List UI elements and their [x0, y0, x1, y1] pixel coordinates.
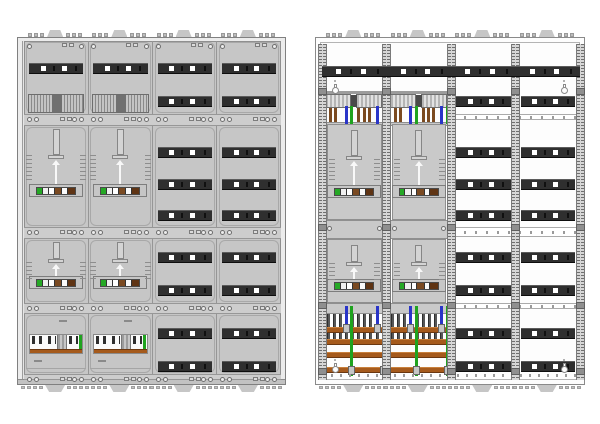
- terminal-segment: [125, 280, 131, 286]
- flange-rib: [565, 386, 569, 389]
- rail-mark: [479, 69, 481, 74]
- field-separator: [88, 41, 89, 379]
- meter-arrow-line: [55, 165, 57, 187]
- frame-rail-hatch: [512, 44, 515, 378]
- rail-mark: [246, 66, 248, 71]
- frame-rail: [447, 44, 456, 380]
- wire-green: [446, 106, 449, 124]
- cover-clip: [189, 306, 194, 310]
- busbar-prong: [428, 314, 431, 344]
- flange-rib: [390, 386, 394, 389]
- terminal-row-center-block: [52, 95, 62, 112]
- busbar-prong: [391, 314, 394, 344]
- cable-flange-bump-top: [474, 30, 490, 37]
- rail-window: [169, 255, 174, 260]
- rail-window: [553, 331, 558, 336]
- cable-flange-bump-bottom: [343, 385, 363, 392]
- side-wall-left: [18, 38, 23, 384]
- rail-window: [190, 213, 195, 218]
- screw: [91, 230, 96, 235]
- meter-field-band: [322, 220, 451, 239]
- meter-hanger-rail: [53, 129, 60, 155]
- flange-rib: [131, 386, 135, 389]
- rail-mark: [350, 69, 352, 74]
- flange-rib: [98, 33, 102, 37]
- section-boundary-band: [24, 227, 281, 239]
- section-boundary-band: [24, 303, 281, 314]
- rail-window: [468, 213, 473, 218]
- terminal-segment: [112, 188, 118, 194]
- meter-terminal-block: [93, 184, 147, 197]
- rail-window: [254, 255, 259, 260]
- meter-arrow-head: [415, 161, 423, 166]
- keyhole-dot: [334, 359, 336, 361]
- flange-rib: [332, 33, 336, 37]
- cover-clip: [126, 43, 131, 47]
- flange-rib: [532, 33, 536, 37]
- rail-bracket: [318, 88, 327, 95]
- rail-mark: [502, 364, 504, 369]
- rail-mark: [567, 99, 569, 104]
- vent-slots: [374, 156, 380, 180]
- cabinet-open-frame-view: [315, 37, 585, 385]
- din-rail-cover: [158, 96, 212, 107]
- terminal-comb: [325, 94, 351, 108]
- terminal-segment: [424, 283, 430, 289]
- rail-window: [532, 99, 537, 104]
- rail-mark: [53, 66, 55, 71]
- comb-cap-bar: [323, 91, 386, 94]
- din-rail-cover: [456, 179, 511, 190]
- flange-rib: [271, 33, 275, 37]
- flange-rib: [214, 386, 218, 389]
- din-rail-cover: [222, 285, 276, 296]
- screw: [208, 44, 213, 49]
- cover-clip: [124, 377, 129, 381]
- din-rail-cover: [456, 210, 511, 221]
- rail-mark: [268, 364, 270, 369]
- wire-lug: [413, 366, 420, 375]
- rail-window: [468, 364, 473, 369]
- terminal-segment: [48, 280, 54, 286]
- terminal-segment: [404, 189, 411, 195]
- terminal-segment: [67, 280, 75, 286]
- rail-mark: [506, 69, 508, 74]
- wire-lug: [348, 366, 355, 375]
- cover-clip: [131, 377, 136, 381]
- busbar-prong: [345, 314, 348, 344]
- vent-slots: [80, 259, 86, 279]
- section-line-band: [451, 114, 580, 120]
- rail-mark: [204, 182, 206, 187]
- wire-blue-drop: [440, 306, 443, 328]
- flange-rib: [319, 386, 323, 389]
- terminal-segment: [101, 188, 106, 194]
- section-cover-outline: [219, 240, 279, 302]
- rail-window: [465, 69, 470, 74]
- rail-mark: [567, 150, 569, 155]
- flange-rib: [441, 33, 445, 37]
- meter-hanger-foot: [48, 155, 64, 159]
- flange-rib: [577, 386, 581, 389]
- busbar-prong: [376, 314, 379, 344]
- vent-slots: [439, 156, 445, 180]
- flange-rib: [526, 33, 530, 37]
- flange-rib: [442, 386, 446, 389]
- cable-flange-bump-bottom: [472, 385, 492, 392]
- vent-slots: [374, 262, 380, 280]
- screw: [144, 377, 149, 382]
- busbar-prong: [363, 314, 366, 344]
- rail-window: [254, 182, 259, 187]
- rail-window: [254, 288, 259, 293]
- wire-brown: [422, 108, 425, 122]
- rail-window: [169, 150, 174, 155]
- meter-hanger-foot: [112, 259, 128, 263]
- screw: [201, 306, 206, 311]
- rail-window: [190, 255, 195, 260]
- wire-brown: [388, 108, 391, 122]
- flange-rib: [461, 33, 465, 37]
- terminal-segment: [37, 280, 42, 286]
- busbar-copper-bar: [324, 327, 385, 333]
- vent-slots: [394, 262, 400, 280]
- section-cover-outline: [26, 240, 86, 302]
- din-rail-cover: [222, 179, 276, 190]
- screw: [227, 230, 232, 235]
- din-rail-cover: [456, 147, 511, 158]
- vent-slots: [90, 154, 96, 180]
- screw: [220, 117, 225, 122]
- cover-clip: [260, 117, 265, 121]
- cable-flange-bump-bottom: [174, 385, 194, 392]
- terminal-segment: [416, 189, 423, 195]
- flange-rib: [67, 386, 71, 389]
- flange-rib: [91, 386, 95, 389]
- rail-bracket: [511, 224, 520, 231]
- flange-rib: [72, 33, 76, 37]
- terminal-segment: [37, 188, 42, 194]
- rail-window: [234, 288, 239, 293]
- flange-rib: [266, 386, 270, 389]
- terminal-segment: [106, 188, 113, 194]
- screw: [144, 44, 149, 49]
- wire-brown: [324, 108, 327, 122]
- connector-teeth: [48, 336, 56, 344]
- keyhole-icon: [561, 366, 568, 373]
- rail-mark: [268, 99, 270, 104]
- busbar-hatch-block: [121, 335, 131, 353]
- bottom-wall: [18, 379, 285, 384]
- rail-window: [530, 69, 535, 74]
- screw: [98, 117, 103, 122]
- frame-rail-hatch: [516, 44, 519, 378]
- rail-window: [553, 288, 558, 293]
- vent-slots: [329, 156, 335, 180]
- terminal-segment: [112, 280, 118, 286]
- frame-rail: [318, 44, 327, 380]
- screw: [220, 377, 225, 382]
- din-rail-cover: [521, 210, 576, 221]
- rail-mark: [502, 255, 504, 260]
- rail-window: [489, 364, 494, 369]
- rail-window: [234, 213, 239, 218]
- screw: [137, 306, 142, 311]
- flange-rib: [326, 33, 330, 37]
- cover-clip: [124, 306, 129, 310]
- terminal-segment: [54, 280, 61, 286]
- terminal-segment: [400, 189, 405, 195]
- flange-rib: [402, 386, 406, 389]
- rail-window: [234, 182, 239, 187]
- rail-window: [190, 99, 195, 104]
- rail-window: [489, 331, 494, 336]
- flange-rib: [466, 386, 470, 389]
- busbar-prong: [397, 314, 400, 344]
- meter-terminal-block: [93, 276, 147, 289]
- meter-arrow-head: [350, 161, 358, 166]
- wire-dot: [43, 115, 45, 117]
- rail-bracket: [382, 302, 391, 309]
- cabinet-covered-view: [17, 37, 286, 385]
- cable-flange-bump-bottom: [238, 385, 258, 392]
- terminal-segment: [335, 283, 340, 289]
- rail-bracket: [576, 224, 585, 231]
- frame-rail: [382, 44, 391, 380]
- rail-window: [254, 213, 259, 218]
- band-ticks: [453, 116, 578, 119]
- flange-rib: [571, 386, 575, 389]
- rail-mark: [268, 331, 270, 336]
- meter-terminal-strip: [334, 282, 374, 290]
- flange-rib: [233, 33, 237, 37]
- flange-rib: [168, 386, 172, 389]
- terminal-segment: [42, 188, 49, 194]
- rail-mark: [246, 99, 248, 104]
- rail-mark: [544, 182, 546, 187]
- wire-green-drop: [350, 306, 353, 376]
- cover-seam-line: [26, 368, 86, 369]
- flange-rib: [391, 33, 395, 37]
- section-cover-outline: [26, 42, 86, 113]
- rail-window: [254, 150, 259, 155]
- rail-window: [336, 69, 341, 74]
- terminal-segment: [365, 283, 373, 289]
- flange-rib: [525, 386, 529, 389]
- cover-clip: [255, 43, 260, 47]
- busbar-copper-bar: [324, 367, 385, 373]
- rail-window: [532, 331, 537, 336]
- flange-rib: [448, 386, 452, 389]
- rail-bracket: [511, 302, 520, 309]
- screw: [144, 117, 149, 122]
- terminal-segment: [340, 283, 347, 289]
- terminal-segment: [48, 188, 54, 194]
- flange-rib: [232, 386, 236, 389]
- rail-bracket: [318, 368, 327, 375]
- screw: [72, 230, 77, 235]
- screw: [98, 377, 103, 382]
- flange-rib: [196, 386, 200, 389]
- flange-rib: [202, 386, 206, 389]
- flange-rib: [78, 33, 82, 37]
- cover-clip: [260, 230, 265, 234]
- pe-green-stripe: [79, 335, 82, 353]
- rail-mark: [502, 288, 504, 293]
- flange-rib: [467, 33, 471, 37]
- section-cover-outline: [90, 127, 150, 226]
- din-rail-cover: [222, 63, 276, 74]
- screw: [144, 306, 149, 311]
- din-rail-cover: [456, 328, 511, 339]
- meter-arrow-line: [418, 272, 420, 284]
- rail-window: [489, 99, 494, 104]
- wire-brown: [368, 108, 371, 122]
- flange-rib: [272, 386, 276, 389]
- rail-mark: [181, 99, 183, 104]
- terminal-block-row: [28, 94, 84, 113]
- flange-rib: [370, 33, 374, 37]
- rail-window: [489, 182, 494, 187]
- flange-rib: [564, 33, 568, 37]
- busbar-copper-bar: [389, 367, 450, 373]
- cover-clip: [189, 377, 194, 381]
- rail-window: [361, 69, 366, 74]
- frame-rail: [576, 44, 585, 380]
- wire-lug: [444, 366, 451, 375]
- wire-brown: [432, 108, 435, 122]
- terminal-segment: [118, 280, 125, 286]
- screw: [27, 44, 32, 49]
- cover-clip: [253, 230, 258, 234]
- rail-window: [169, 182, 174, 187]
- terminal-segment: [346, 189, 352, 195]
- vent-slots: [439, 262, 445, 280]
- cover-clip: [124, 230, 129, 234]
- meter-mounting-plate: [392, 239, 447, 303]
- busbar-copper-bar: [30, 349, 82, 353]
- flange-rib: [97, 386, 101, 389]
- rail-window: [532, 150, 537, 155]
- screw: [91, 306, 96, 311]
- band-ticks: [453, 305, 578, 308]
- cover-clip: [60, 306, 65, 310]
- rail-window: [190, 150, 195, 155]
- rail-mark: [181, 213, 183, 218]
- screw: [227, 306, 232, 311]
- screw: [156, 377, 161, 382]
- meter-terminal-block: [327, 185, 381, 198]
- wire-dot: [70, 115, 72, 117]
- screw: [163, 306, 168, 311]
- flange-rib: [448, 386, 452, 389]
- flange-rib: [40, 33, 44, 37]
- flange-rib: [149, 386, 153, 389]
- flange-rib: [143, 386, 147, 389]
- section-boundary-band: [24, 114, 281, 126]
- terminal-segment: [400, 283, 405, 289]
- terminal-segment: [429, 189, 437, 195]
- din-rail-cover: [222, 210, 276, 221]
- cover-clip: [60, 230, 65, 234]
- screw: [91, 44, 96, 49]
- screw: [163, 377, 168, 382]
- meter-terminal-block: [29, 184, 83, 197]
- rail-mark: [268, 255, 270, 260]
- rail-window: [234, 364, 239, 369]
- rail-mark: [567, 288, 569, 293]
- din-rail-cover: [456, 252, 511, 263]
- screw: [272, 306, 277, 311]
- section-cover-outline: [155, 42, 215, 113]
- screw: [272, 230, 277, 235]
- fields-area: [24, 41, 281, 379]
- rail-window: [553, 364, 558, 369]
- flange-rib: [142, 33, 146, 37]
- vent-slots: [394, 156, 400, 180]
- field-separator: [216, 41, 217, 379]
- rail-bracket: [447, 224, 456, 231]
- rail-mark: [268, 182, 270, 187]
- side-wall-right: [280, 38, 285, 384]
- flange-rib: [493, 33, 497, 37]
- screw: [79, 230, 84, 235]
- flange-rib: [195, 33, 199, 37]
- rail-mark: [480, 255, 482, 260]
- rail-bracket: [318, 224, 327, 231]
- meter-hanger-foot: [48, 259, 64, 263]
- rail-window: [532, 255, 537, 260]
- cover-clip: [133, 43, 138, 47]
- busbar-prong: [369, 314, 372, 344]
- rail-window: [553, 99, 558, 104]
- terminal-comb: [421, 94, 447, 108]
- screw: [272, 377, 277, 382]
- meter-hanger-foot: [411, 262, 427, 266]
- wire-blue: [345, 106, 348, 124]
- flange-rib: [338, 33, 342, 37]
- screw: [27, 306, 32, 311]
- rail-mark: [268, 66, 270, 71]
- meter-hanger-rail: [117, 129, 124, 155]
- cover-clip: [196, 117, 201, 121]
- cover-clip: [60, 117, 65, 121]
- flange-rib: [79, 386, 83, 389]
- meter-terminal-strip: [334, 188, 374, 196]
- rail-mark: [181, 364, 183, 369]
- rail-mark: [544, 288, 546, 293]
- rail-bracket: [576, 302, 585, 309]
- flange-rib: [136, 33, 140, 37]
- flange-rib: [403, 33, 407, 37]
- screw: [377, 226, 382, 231]
- rail-mark: [181, 255, 183, 260]
- flange-rib: [220, 386, 224, 389]
- rail-window: [169, 66, 174, 71]
- rail-mark: [246, 255, 248, 260]
- flange-rib: [33, 386, 37, 389]
- busbar-copper-bar: [389, 327, 450, 333]
- rail-window: [490, 69, 495, 74]
- rail-window: [401, 69, 406, 74]
- busbar-prong: [440, 314, 443, 344]
- din-rail-cover: [521, 252, 576, 263]
- rail-window: [532, 364, 537, 369]
- terminal-segment: [131, 280, 139, 286]
- rail-window: [553, 150, 558, 155]
- screw: [265, 230, 270, 235]
- rail-window: [254, 364, 259, 369]
